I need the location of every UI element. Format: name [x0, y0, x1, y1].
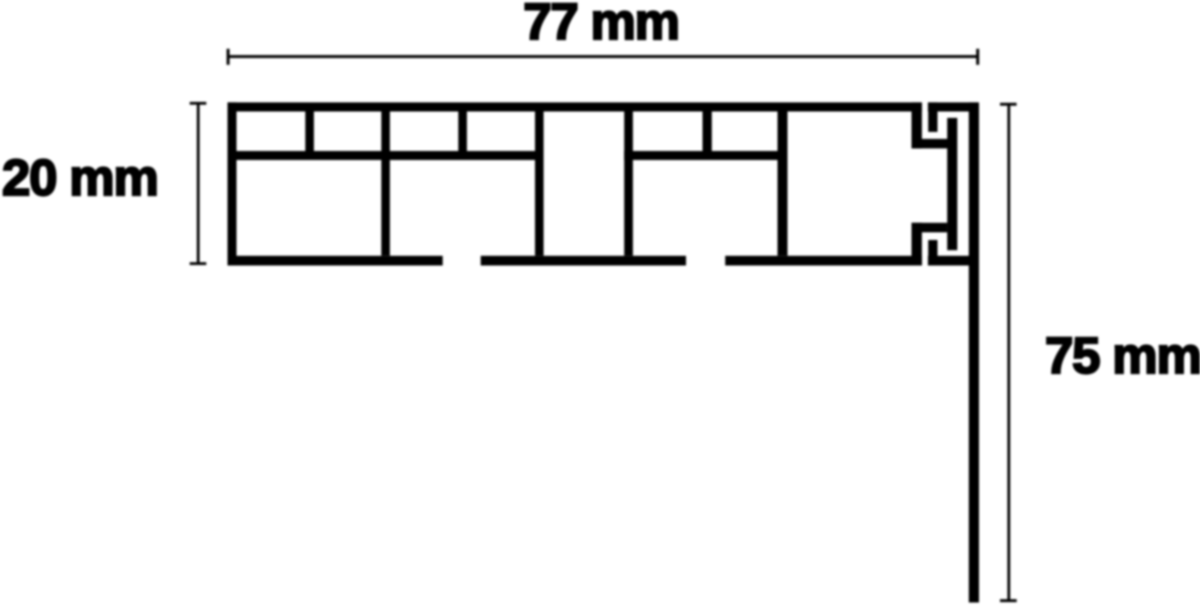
svg-text:20 mm: 20 mm — [2, 149, 158, 206]
svg-text:75 mm: 75 mm — [1045, 327, 1200, 384]
svg-text:77 mm: 77 mm — [523, 0, 679, 50]
